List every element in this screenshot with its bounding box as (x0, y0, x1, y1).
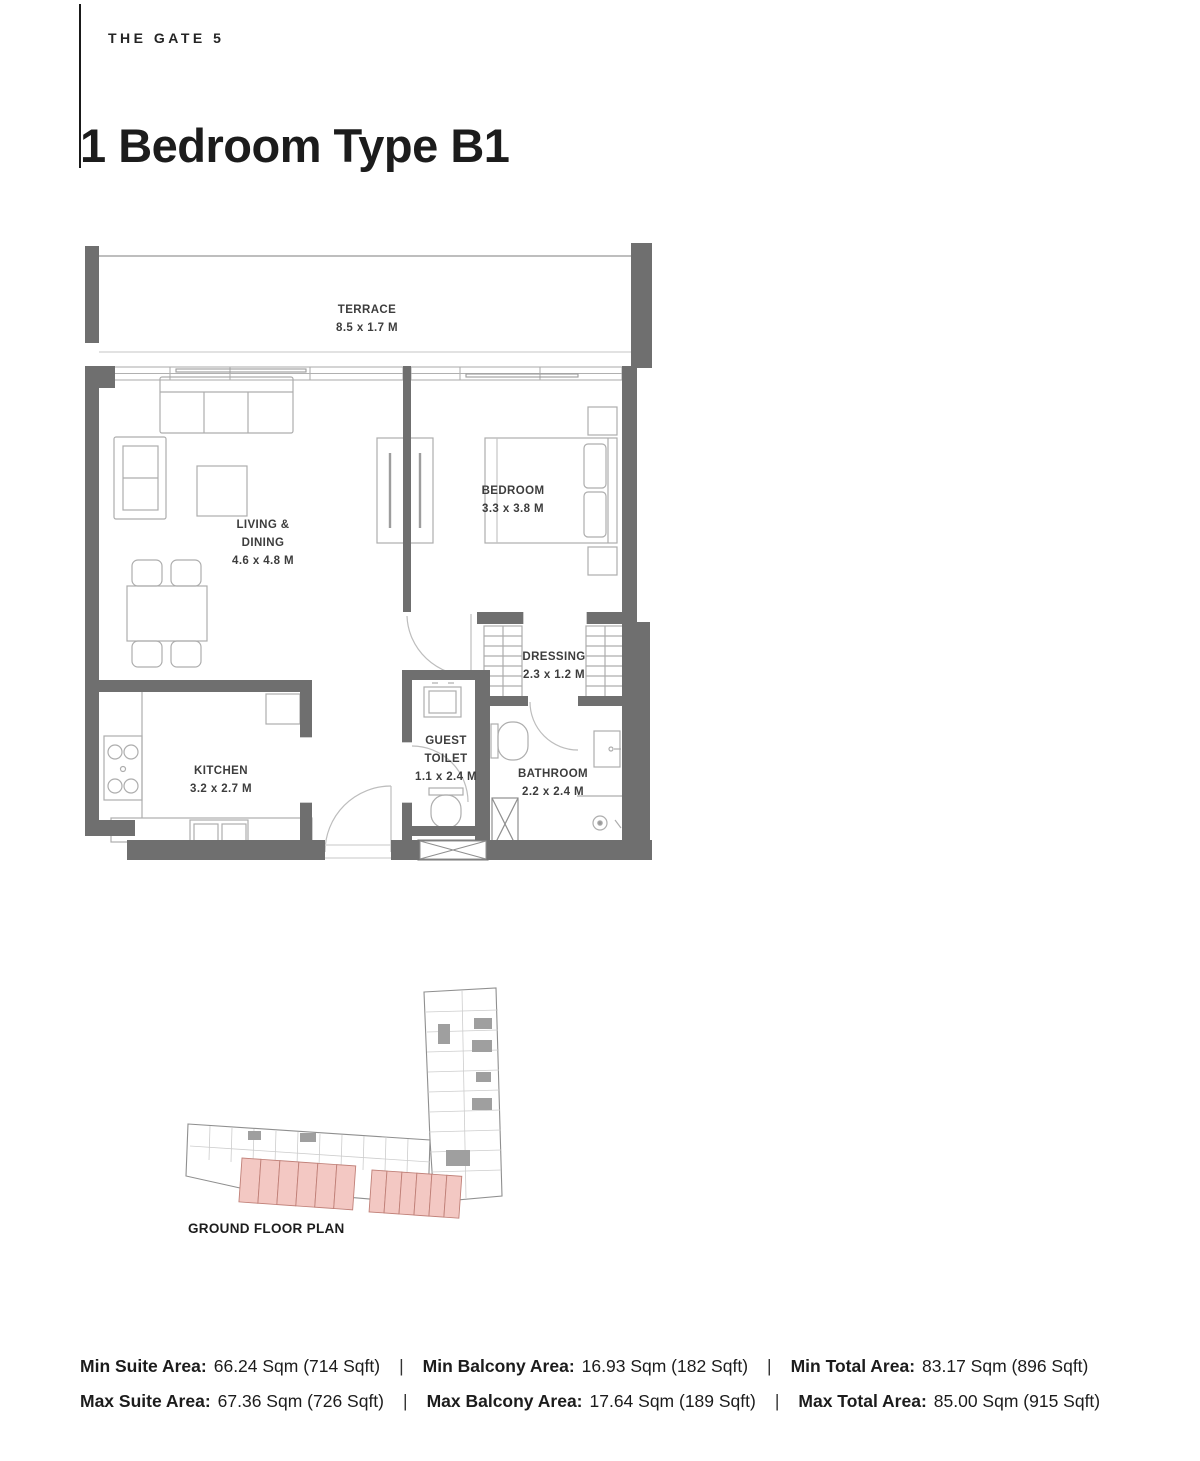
bathroom-label: BATHROOM (518, 768, 588, 780)
coffee-table (197, 466, 247, 516)
bathroom-dims: 2.2 x 2.4 M (522, 786, 584, 798)
armchair (114, 437, 166, 519)
bedroom-door (407, 614, 471, 676)
stat-separator: | (767, 1356, 772, 1377)
stat-separator: | (403, 1391, 408, 1412)
stat-label: Max Balcony Area: (427, 1391, 583, 1412)
dressing-label: DRESSING (522, 651, 585, 663)
living-label-2: DINING (242, 537, 285, 549)
nightstand-top (588, 407, 617, 435)
bathroom-door (530, 702, 578, 750)
window-band (111, 367, 622, 380)
stat-value: 85.00 Sqm (915 Sqft) (934, 1391, 1100, 1412)
room-labels: TERRACE 8.5 x 1.7 M LIVING & DINING 4.6 … (190, 304, 588, 798)
stat-label: Min Balcony Area: (423, 1356, 575, 1377)
sofa (160, 377, 293, 433)
shaft-box-overlay (420, 841, 486, 859)
nightstand-bottom (588, 547, 617, 575)
ground-floor-mini-map: GROUND FLOOR PLAN (186, 988, 502, 1236)
bedroom-dims: 3.3 x 3.8 M (482, 503, 544, 515)
stat-value: 66.24 Sqm (714 Sqft) (214, 1356, 380, 1377)
guest-toilet-label-2: TOILET (424, 753, 467, 765)
stats-row-min: Min Suite Area: 66.24 Sqm (714 Sqft) | M… (80, 1356, 1120, 1377)
terrace-label: TERRACE (338, 304, 396, 316)
stat-separator: | (775, 1391, 780, 1412)
stat-label: Max Total Area: (798, 1391, 926, 1412)
living-label-1: LIVING & (236, 519, 289, 531)
entrance-door (325, 786, 391, 858)
stat-separator: | (399, 1356, 404, 1377)
stat-value: 16.93 Sqm (182 Sqft) (582, 1356, 748, 1377)
living-dims: 4.6 x 4.8 M (232, 555, 294, 567)
guest-toilet-label-1: GUEST (425, 735, 467, 747)
kitchen-dims: 3.2 x 2.7 M (190, 783, 252, 795)
stat-value: 83.17 Sqm (896 Sqft) (922, 1356, 1088, 1377)
dining-set (127, 560, 207, 667)
kitchen-label: KITCHEN (194, 765, 248, 777)
mini-map-label: GROUND FLOOR PLAN (188, 1221, 345, 1236)
guest-toilet-dims: 1.1 x 2.4 M (415, 771, 477, 783)
stat-label: Max Suite Area: (80, 1391, 211, 1412)
floor-plan-drawing: TERRACE 8.5 x 1.7 M LIVING & DINING 4.6 … (0, 0, 1200, 1461)
stat-value: 17.64 Sqm (189 Sqft) (590, 1391, 756, 1412)
stat-label: Min Total Area: (791, 1356, 915, 1377)
terrace-dims: 8.5 x 1.7 M (336, 322, 398, 334)
fridge (266, 694, 300, 724)
bedroom-label: BEDROOM (482, 485, 545, 497)
stat-value: 67.36 Sqm (726 Sqft) (218, 1391, 384, 1412)
stats-row-max: Max Suite Area: 67.36 Sqm (726 Sqft) | M… (80, 1391, 1120, 1412)
dressing-dims: 2.3 x 1.2 M (523, 669, 585, 681)
stat-label: Min Suite Area: (80, 1356, 207, 1377)
